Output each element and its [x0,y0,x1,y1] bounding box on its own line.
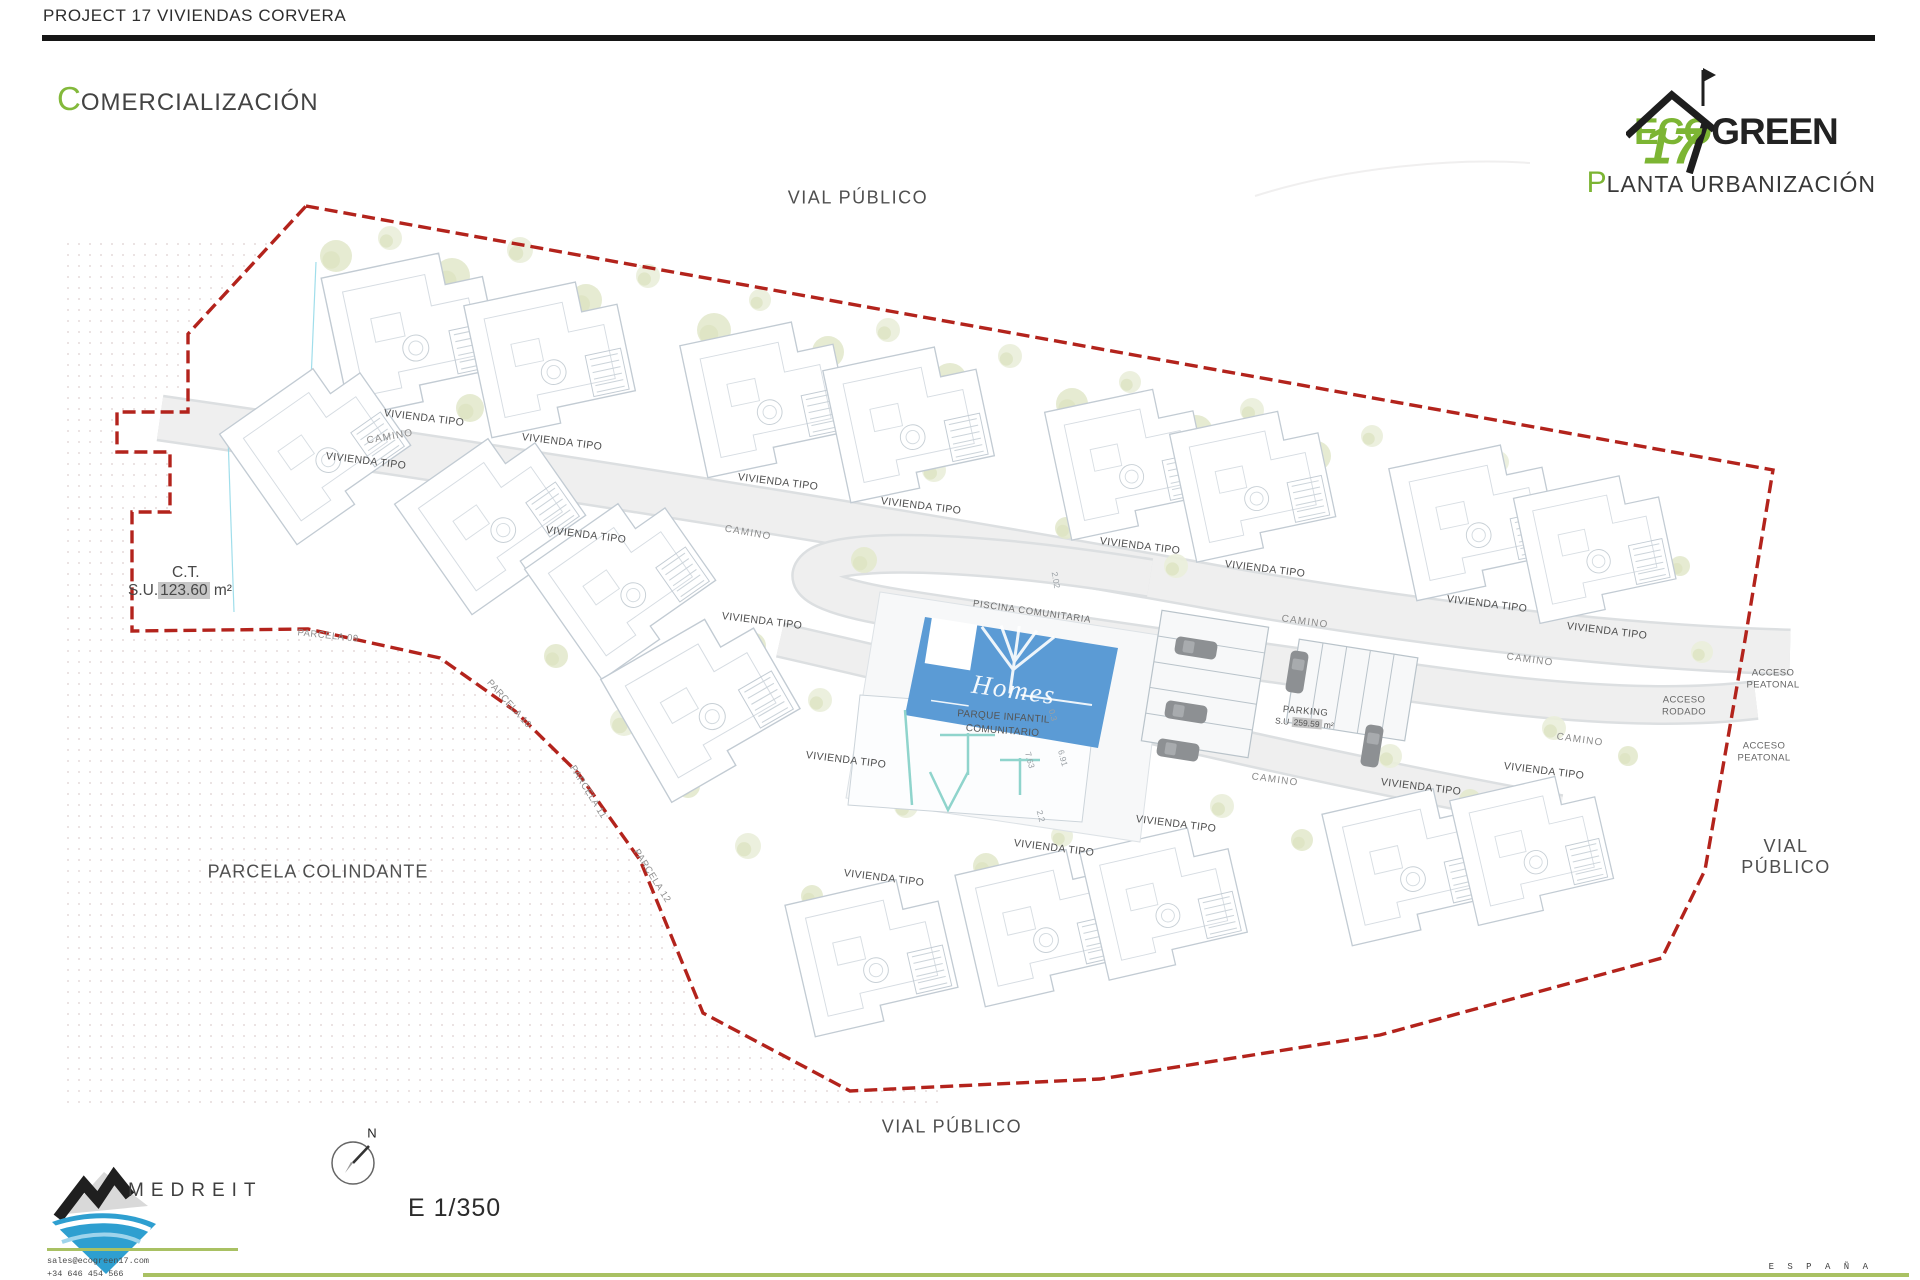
plan-label: CAMINO [724,523,772,542]
plan-label: PISCINA COMUNITARIA [972,598,1092,625]
plan-label: VIVIENDA TIPO [1224,558,1306,580]
plan-label: CAMINO [366,427,414,446]
plan-label: VIAL PÚBLICO [1719,836,1853,878]
ct-label: C.T. S.U.123.60 m² [128,564,232,600]
address-country: E S P A Ñ A [1732,1261,1872,1273]
address-block: E S P A Ñ A Calle Corvera Golf Country C… [1732,1237,1872,1280]
plan-label: N [367,1126,376,1141]
footer-green-line-1 [47,1248,238,1251]
section-title: COMERCIALIZACIÓN [57,80,319,118]
plan-label: PARCELA 12 [631,847,673,905]
plan-label: VIVIENDA TIPO [521,431,603,453]
plan-label: VIAL PÚBLICO [882,1117,1022,1138]
footer-green-line-2 [143,1273,1909,1277]
plan-label: VIVIENDA TIPO [1380,776,1462,798]
plan-label: VIVIENDA TIPO [1099,535,1181,557]
project-title: PROJECT 17 VIVIENDAS CORVERA [43,6,346,26]
plan-label: 7.63 [1023,751,1037,770]
header-rule [42,35,1875,41]
plan-label: VIVIENDA TIPO [1013,837,1095,859]
plan-label: 6.91 [1056,749,1070,768]
plan-label: VIVIENDA TIPO [1503,760,1585,782]
plan-label: CAMINO [1506,651,1554,668]
plan-label: VIVIENDA TIPO [737,471,819,493]
plan-label: ACCESO PEATONAL [1746,668,1799,693]
plan-label: 2.2 [1035,809,1048,823]
ecogreen17-logo: ECOGREEN 17 [1634,86,1838,150]
plan-label: VIVIENDA TIPO [805,749,887,771]
plan-label: ACCESO RODADO [1662,695,1706,720]
plan-label: 2.02 [1050,571,1063,589]
scale-label: E 1/350 [408,1194,501,1223]
plan-label: CAMINO [1556,731,1604,748]
plan-label: VIVIENDA TIPO [325,450,407,472]
plan-label: VIVIENDA TIPO [1566,620,1648,642]
plan-label: PARCELA COLINDANTE [208,862,429,883]
plan-label: PARCELA 09 [297,627,359,644]
logo-green: GREEN [1711,113,1838,150]
ct-surface: S.U.123.60 m² [128,582,232,600]
logo-house-icon: 17 [1626,86,1714,174]
contact-block: sales@ecogreen17.com +34 646 454 566 [47,1255,149,1280]
plan-label: VIVIENDA TIPO [383,407,465,429]
plan-label: VIVIENDA TIPO [1135,813,1217,835]
plan-label: PARQUE INFANTIL COMUNITARIO [956,707,1050,740]
ct-surface-value: 123.60 [158,582,209,599]
plan-label: VIVIENDA TIPO [721,610,803,632]
medreit-brand-text: MEDREIT [128,1180,263,1202]
plan-label: PARCELA 10 [484,678,533,731]
plan-title: PLANTA URBANIZACIÓN [1587,166,1876,200]
plan-label: VIVIENDA TIPO [545,524,627,546]
plan-label: VIVIENDA TIPO [1446,593,1528,615]
plan-label: ACCESO PEATONAL [1737,741,1790,766]
plan-sheet: VIAL PÚBLICOVIAL PÚBLICOVIAL PÚBLICOPARC… [0,0,1920,1280]
plan-label: VIVIENDA TIPO [843,867,925,889]
plan-label: CAMINO [1251,771,1299,788]
plan-label: CAMINO [1281,613,1329,630]
contact-phone: +34 646 454 566 [47,1268,149,1280]
plan-label: PARCELA 11 [567,763,608,820]
plan-label: VIVIENDA TIPO [880,495,962,517]
contact-email: sales@ecogreen17.com [47,1255,149,1268]
ct-title: C.T. [172,564,232,582]
plan-label: VIAL PÚBLICO [788,188,928,209]
